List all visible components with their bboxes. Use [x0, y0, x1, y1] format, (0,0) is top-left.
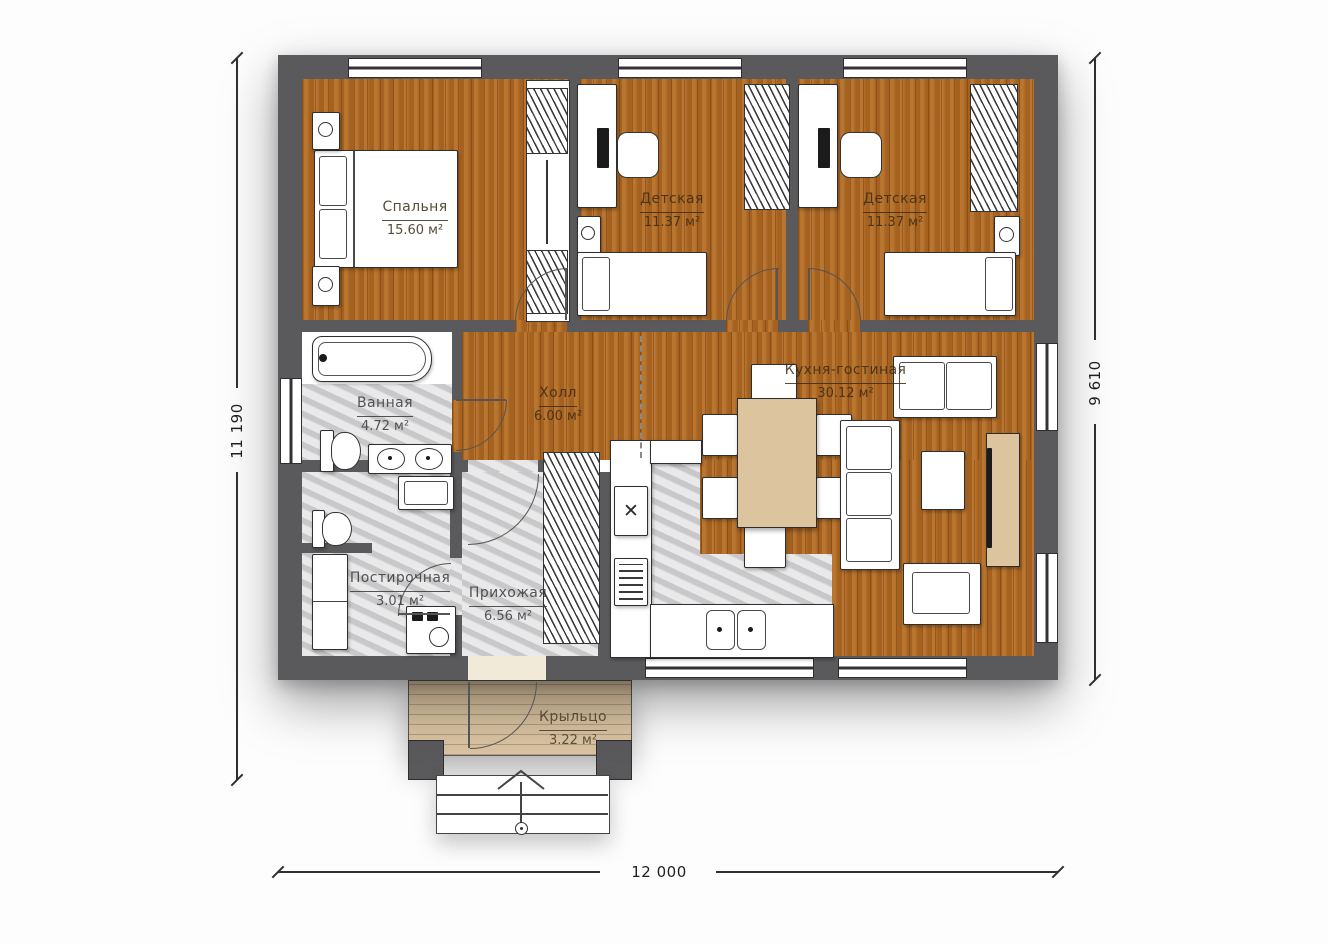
- door-leaf: [468, 682, 470, 748]
- wall-segment: [860, 320, 1034, 332]
- dining-chair: [744, 526, 786, 568]
- kitchen-tile-area: [650, 554, 832, 604]
- drain-dot: [717, 627, 722, 632]
- window: [838, 658, 967, 678]
- window: [348, 58, 482, 78]
- drain-dot: [388, 456, 392, 460]
- sink-basin: [404, 481, 448, 505]
- door-leaf: [456, 399, 506, 401]
- floor-plan-canvas: ✕ Спальня: [0, 0, 1328, 944]
- dining-chair: [702, 477, 738, 519]
- step-line: [436, 813, 608, 815]
- blanket-line: [353, 151, 355, 267]
- porch-pillar: [408, 740, 444, 780]
- window: [618, 58, 742, 78]
- faucet-icon: [319, 354, 327, 362]
- small-sink: [398, 476, 454, 510]
- window: [1036, 343, 1058, 431]
- storage-cabinet: [312, 554, 348, 650]
- wardrobe-hatch: [744, 84, 790, 210]
- lamp-icon: [999, 227, 1014, 242]
- window: [843, 58, 967, 78]
- passage-dashed-line: [640, 336, 642, 458]
- door-leaf: [808, 268, 810, 320]
- monitor-icon: [818, 128, 830, 168]
- wall-segment: [302, 320, 515, 332]
- door-opening: [468, 656, 546, 680]
- pillow: [582, 257, 610, 311]
- toilet-bowl: [322, 512, 352, 546]
- dining-chair: [702, 414, 738, 456]
- lamp-icon: [318, 122, 333, 137]
- mirror-line: [546, 160, 548, 244]
- wardrobe-hatch: [970, 84, 1018, 212]
- window: [280, 378, 302, 464]
- bathtub-inner: [318, 342, 426, 376]
- dimension-value-bottom: 12 000: [604, 863, 714, 881]
- dimension-line-left: [236, 58, 238, 388]
- kitchen-counter-left: [610, 440, 652, 658]
- dimension-line-left: [236, 472, 238, 780]
- double-kitchen-sink: [706, 610, 766, 650]
- monitor-icon: [597, 128, 609, 168]
- tv-icon: [987, 448, 992, 548]
- bathtub: [312, 336, 432, 382]
- door-opening: [726, 320, 778, 332]
- window: [645, 658, 814, 678]
- wardrobe-hatch: [526, 88, 568, 154]
- porch-pillar: [596, 740, 632, 780]
- sofa-cushion: [899, 362, 945, 410]
- dimension-line-right: [1094, 58, 1096, 340]
- dimension-value-left: 11 190: [228, 398, 246, 464]
- single-bed: [884, 252, 1016, 316]
- window: [1036, 553, 1058, 643]
- shelf-line: [313, 601, 347, 602]
- sofa-cushion: [946, 362, 992, 410]
- door-leaf: [776, 268, 778, 320]
- door-opening: [468, 460, 538, 472]
- dimension-line-bottom: [278, 871, 600, 873]
- lamp-icon: [581, 226, 595, 240]
- dimension-line-bottom: [716, 871, 1058, 873]
- oven: [614, 558, 648, 606]
- sofa-cushion: [846, 426, 892, 470]
- armchair-cushion: [912, 572, 970, 614]
- single-bed: [577, 252, 707, 316]
- desk-chair: [617, 132, 659, 178]
- vanity-double-sink: [368, 444, 452, 474]
- desk-chair: [840, 132, 882, 178]
- double-bed: [314, 150, 458, 268]
- sofa-long: [840, 420, 900, 570]
- lamp-icon: [318, 277, 333, 292]
- pillow: [319, 209, 347, 259]
- sofa-cushion: [846, 472, 892, 516]
- dining-chair: [751, 364, 797, 402]
- coffee-table: [921, 451, 965, 510]
- door-opening: [808, 320, 860, 332]
- entry-point-dot: [520, 827, 523, 830]
- wall-segment: [452, 332, 462, 400]
- stove-icon: ✕: [614, 486, 648, 536]
- dimension-value-right: 9 610: [1086, 352, 1104, 414]
- kitchen-cabinet: [650, 440, 702, 464]
- door-leaf: [398, 613, 450, 615]
- armchair: [903, 563, 981, 625]
- direction-arrow-icon: [520, 782, 522, 826]
- oven-stripes: [619, 564, 643, 600]
- wall-segment: [567, 320, 726, 332]
- outer-wall-left: [278, 55, 302, 680]
- dimension-line-right: [1094, 424, 1096, 680]
- pillow: [319, 156, 347, 206]
- drain-dot: [748, 627, 753, 632]
- wall-segment: [452, 452, 462, 472]
- step-line: [436, 794, 608, 796]
- dining-table: [737, 398, 817, 528]
- door-leaf: [565, 268, 567, 320]
- pillow: [985, 257, 1013, 311]
- drain-dot: [426, 456, 430, 460]
- washer-door-icon: [429, 627, 449, 647]
- entry-wardrobe-hatch: [543, 452, 600, 644]
- sofa-cushion: [846, 518, 892, 562]
- toilet-bowl: [331, 432, 361, 470]
- sofa: [893, 356, 997, 418]
